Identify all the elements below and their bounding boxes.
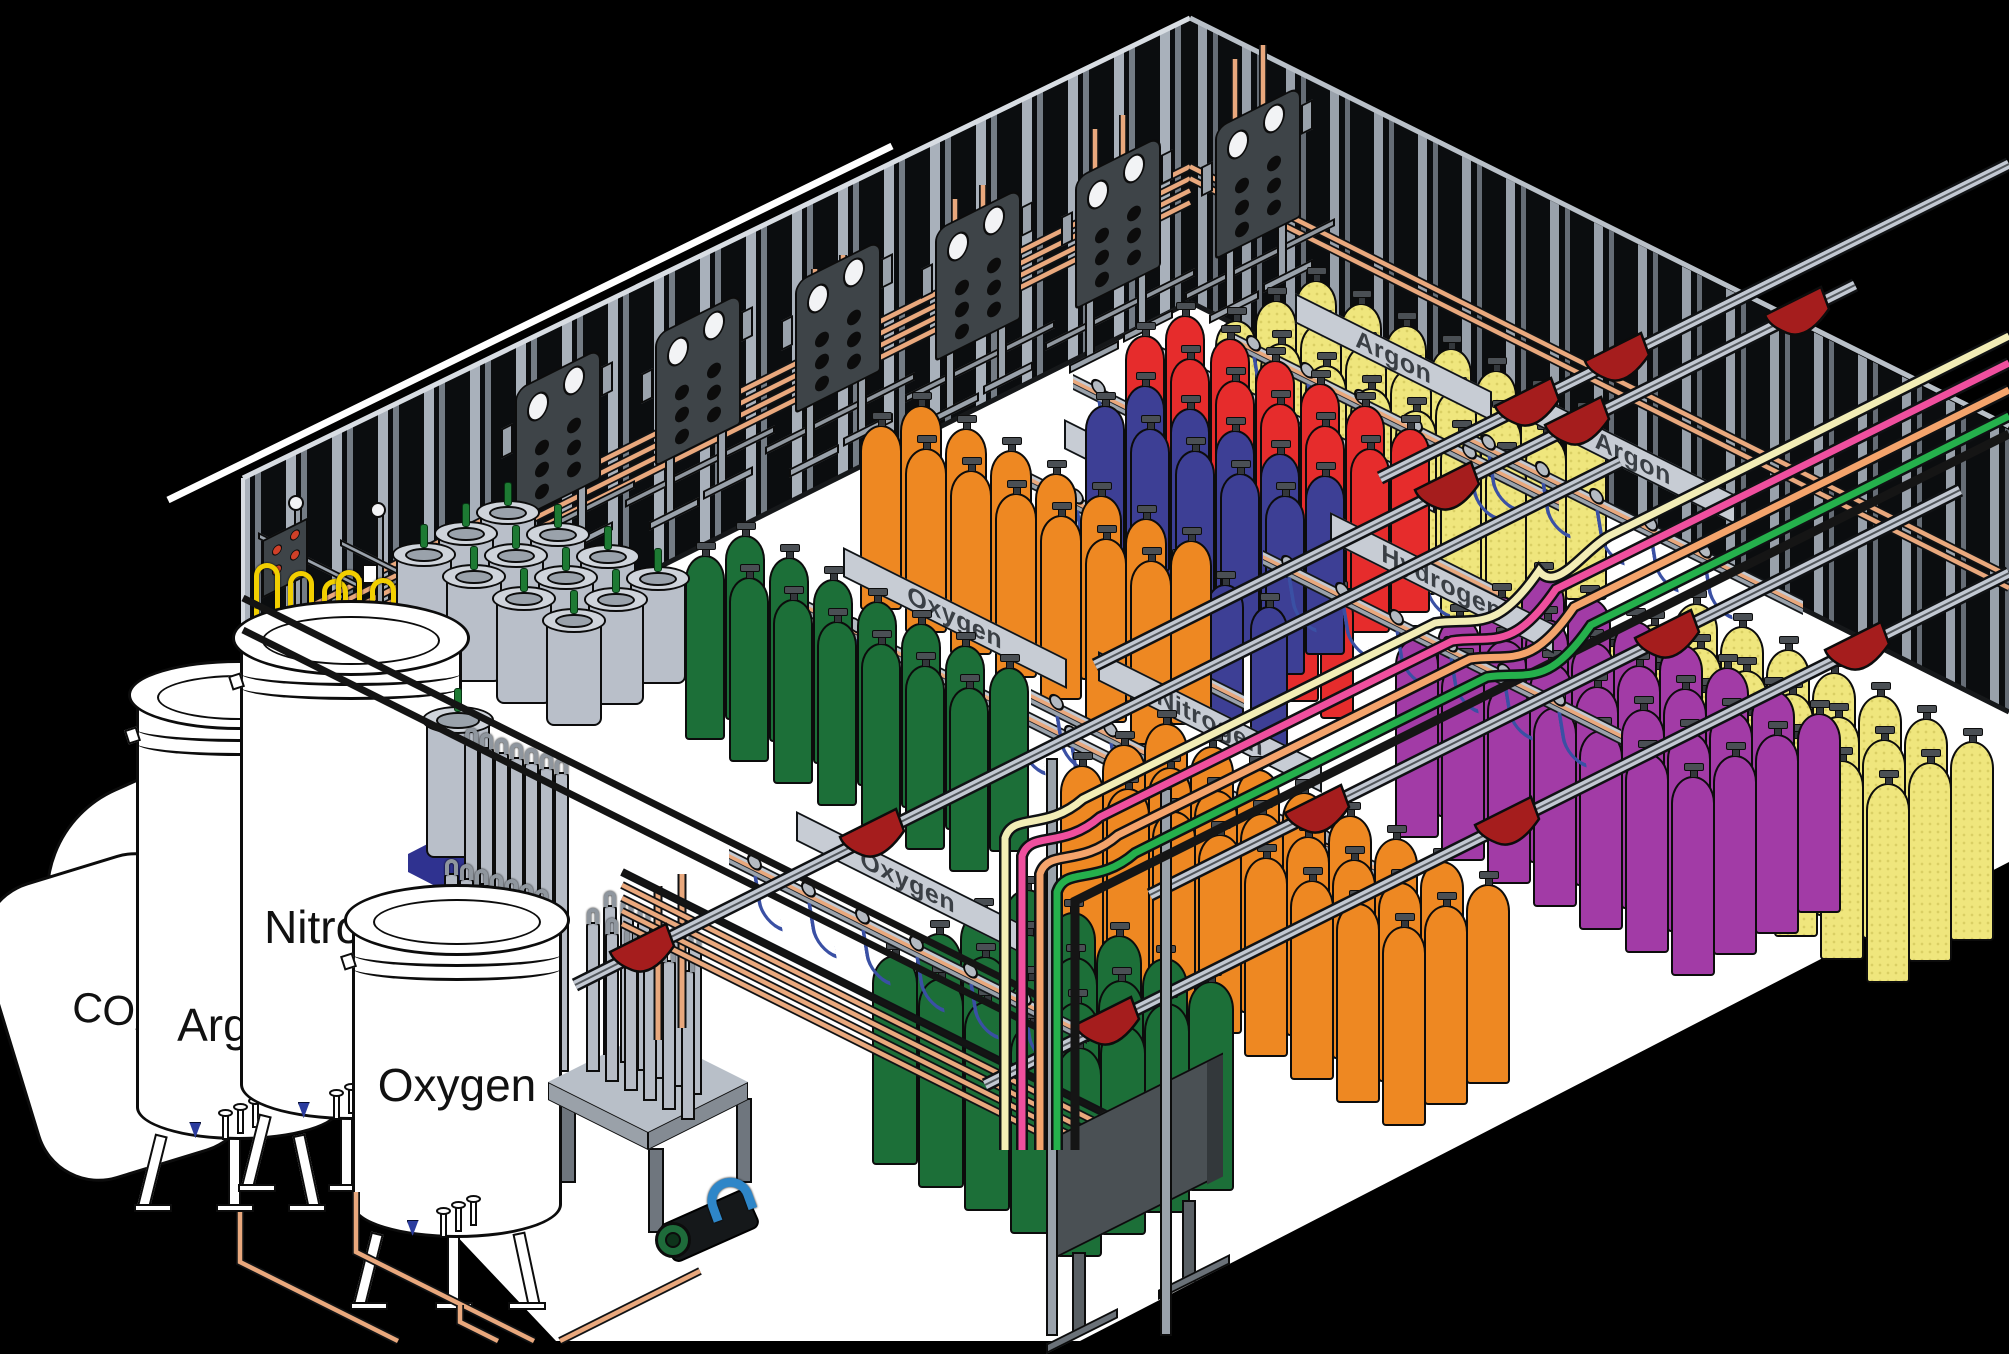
cylinder-valve	[976, 943, 996, 951]
cylinder-valve	[1921, 749, 1941, 757]
cylinder-valve	[1307, 267, 1327, 275]
pressure-gauge	[1227, 125, 1249, 164]
dewar-rim-inner	[489, 506, 527, 521]
cylinder-valve	[1630, 652, 1650, 660]
valve-port	[955, 277, 969, 298]
cylinder-valve	[1829, 703, 1849, 711]
panel-leg	[1182, 1200, 1196, 1282]
valve-port	[1095, 269, 1109, 290]
pressure-gauge	[667, 332, 689, 371]
cylinder-valve	[1442, 335, 1462, 343]
tube-hook	[638, 907, 650, 923]
gas-cylinder	[905, 665, 945, 850]
valve-port	[987, 299, 1001, 320]
cylinder-valve	[1002, 437, 1022, 445]
cylinder-valve	[1810, 700, 1830, 708]
dewar-valve-green	[520, 568, 528, 592]
pressure-gauge	[703, 306, 725, 345]
cylinder-valve	[1492, 583, 1512, 591]
gas-cylinder	[949, 687, 989, 872]
dewar-rim-inner	[639, 572, 677, 587]
indicator-light	[290, 547, 300, 562]
tube-rack-tube	[605, 932, 619, 1082]
vaporizer-leg	[648, 1148, 664, 1233]
cylinder-valve	[1397, 312, 1417, 320]
oxygen-tank-foot	[350, 1302, 388, 1310]
dewar-body	[546, 618, 602, 726]
cylinder-valve	[1020, 921, 1040, 929]
gas-cylinder	[861, 643, 901, 828]
cylinder-valve	[1249, 756, 1269, 764]
panel-post	[781, 315, 793, 351]
cylinder-valve	[1211, 821, 1231, 829]
panel-post	[1021, 201, 1033, 237]
cylinder-valve	[1452, 420, 1472, 428]
tube-rack-tube	[624, 941, 638, 1091]
cylinder-valve	[1221, 325, 1241, 333]
dewar-rim-inner	[436, 712, 480, 729]
panel-post	[501, 423, 513, 459]
dewar-valve-green	[512, 525, 520, 549]
cylinder-valve	[912, 610, 932, 618]
gas-cylinder	[1466, 884, 1510, 1084]
cylinder-valve	[1112, 967, 1132, 975]
cylinder-valve	[1534, 562, 1554, 570]
cylinder-valve	[1257, 844, 1277, 852]
gas-cylinder	[1625, 753, 1669, 953]
tube-hook	[663, 946, 675, 962]
cylinder-valve	[960, 674, 980, 682]
panel-leg	[1072, 1252, 1086, 1334]
dewar-rim-inner	[497, 549, 535, 564]
cylinder-valve	[1584, 629, 1604, 637]
valve-port	[707, 360, 721, 381]
gas-cylinder	[1755, 734, 1799, 934]
cylinder-valve	[1437, 892, 1457, 900]
gas-cylinder	[1336, 903, 1380, 1103]
pressure-gauge	[1123, 149, 1145, 188]
oxygen-tank-fitting	[455, 1206, 462, 1232]
oxygen-tank-leg	[353, 1232, 384, 1307]
valve-port	[1267, 197, 1281, 218]
cylinder-valve	[1407, 397, 1427, 405]
cylinder-valve	[1137, 505, 1157, 513]
cylinder-valve	[1391, 869, 1411, 877]
dewar-valve-green	[654, 548, 662, 572]
cylinder-valve	[916, 652, 936, 660]
gas-cylinder	[1244, 857, 1288, 1057]
cylinder-valve	[1114, 1012, 1134, 1020]
cylinder-valve	[1176, 302, 1196, 310]
cylinder-valve	[1875, 726, 1895, 734]
cylinder-valve	[1645, 611, 1665, 619]
gas-cylinder	[872, 955, 918, 1165]
valve-port	[955, 321, 969, 342]
dewar-valve-green	[562, 547, 570, 571]
tube-hook	[540, 753, 553, 769]
tube-hook	[606, 918, 618, 934]
nitrogen-tank-rim-inner	[262, 616, 440, 665]
cylinder-valve	[1764, 677, 1784, 685]
valve-port	[675, 404, 689, 425]
cylinder-valve	[1317, 352, 1337, 360]
gas-cylinder	[685, 555, 725, 740]
valve-port	[707, 382, 721, 403]
pressure-gauge	[947, 227, 969, 266]
tube-hook	[672, 923, 684, 939]
cylinder-valve	[1142, 547, 1162, 555]
cylinder-valve	[1066, 944, 1086, 952]
dewar-rim-inner	[547, 571, 585, 586]
cylinder-valve	[1492, 400, 1512, 408]
cylinder-valve	[917, 435, 937, 443]
pump-motor-hub	[665, 1232, 681, 1248]
cylinder-valve	[1226, 417, 1246, 425]
valve-port	[535, 481, 549, 502]
dewar-rim-inner	[597, 593, 635, 608]
cylinder-valve	[1345, 846, 1365, 854]
valve-port	[1267, 175, 1281, 196]
cylinder-valve	[1260, 593, 1280, 601]
dewar-valve-green	[420, 524, 428, 548]
cylinder-valve	[780, 544, 800, 552]
tube-hook	[604, 891, 616, 907]
dewar-rim-inner	[405, 548, 443, 563]
argon-tank-fitting	[222, 1114, 229, 1140]
cylinder-valve	[1532, 380, 1552, 388]
cylinder-valve	[1479, 871, 1499, 879]
gas-cylinder	[729, 577, 769, 762]
cylinder-valve	[1226, 367, 1246, 375]
valve-port	[1127, 203, 1141, 224]
cylinder-valve	[824, 566, 844, 574]
cylinder-valve	[912, 392, 932, 400]
valve-port	[1235, 197, 1249, 218]
cylinder-valve	[1092, 482, 1112, 490]
tube-hook	[555, 758, 568, 774]
tube-rack-tube	[662, 960, 676, 1110]
cylinder-valve	[1266, 347, 1286, 355]
cylinder-valve	[1387, 825, 1407, 833]
cylinder-valve	[1267, 287, 1287, 295]
valve-port	[987, 277, 1001, 298]
pressure-gauge	[370, 502, 386, 518]
valve-port	[535, 437, 549, 458]
dewar-valve-green	[470, 546, 478, 570]
tube-hook	[625, 927, 637, 943]
cylinder-valve	[828, 608, 848, 616]
nitrogen-tank-foot	[238, 1184, 276, 1192]
argon-tank-fitting-top	[218, 1109, 233, 1117]
cylinder-valve	[1299, 823, 1319, 831]
cylinder-valve	[740, 564, 760, 572]
argon-tank-foot	[288, 1204, 326, 1212]
cylinder-valve	[1588, 673, 1608, 681]
tube-hook	[621, 899, 633, 915]
argon-tank-fitting	[237, 1108, 244, 1134]
tube-hook	[689, 931, 701, 947]
tube-hook	[480, 733, 493, 749]
cylinder-valve	[1231, 460, 1251, 468]
dewar-rim-inner	[447, 527, 485, 542]
dewar-valve-green	[554, 504, 562, 528]
cylinder-valve	[1202, 968, 1222, 976]
cylinder-valve	[930, 920, 950, 928]
cylinder-valve	[1181, 395, 1201, 403]
cylinder-valve	[1676, 675, 1696, 683]
valve-port	[1235, 175, 1249, 196]
panel-post	[1161, 149, 1173, 185]
valve-port	[955, 299, 969, 320]
cylinder-valve	[1276, 482, 1296, 490]
cylinder-valve	[1018, 876, 1038, 884]
cylinder-valve	[956, 632, 976, 640]
tube-hook	[655, 915, 667, 931]
cylinder-valve	[1203, 733, 1223, 741]
indicator-light	[290, 527, 300, 542]
valve-port	[847, 351, 861, 372]
gas-cylinder	[1713, 755, 1757, 955]
cylinder-valve	[1871, 682, 1891, 690]
cylinder-valve	[1052, 502, 1072, 510]
dewar-valve-green	[454, 688, 462, 712]
oxygen-tank-label: Oxygen	[347, 1058, 567, 1112]
tube-rack-tube	[586, 922, 600, 1072]
cylinder-valve	[1577, 402, 1597, 410]
valve-port	[1127, 247, 1141, 268]
nitrogen-tank-band	[240, 674, 462, 700]
tube-rack-tube	[643, 951, 657, 1101]
cylinder-valve	[1726, 742, 1746, 750]
cylinder-valve	[1161, 754, 1181, 762]
cylinder-valve	[1361, 435, 1381, 443]
cylinder-valve	[1680, 719, 1700, 727]
copper-pipe-outline	[460, 1305, 498, 1341]
dewar-rim-inner	[539, 528, 577, 543]
gas-cylinder	[1866, 783, 1910, 983]
dewar-rim-inner	[455, 570, 493, 585]
valve-port	[1235, 219, 1249, 240]
cylinder-valve	[1186, 437, 1206, 445]
cylinder-valve	[1119, 775, 1139, 783]
cylinder-valve	[1303, 867, 1323, 875]
cylinder-valve	[1684, 763, 1704, 771]
oxygen-tank-foot	[435, 1302, 473, 1310]
tube-rack-tube	[681, 970, 695, 1120]
cylinder-valve	[872, 630, 892, 638]
panel-post	[921, 263, 933, 299]
valve-port	[675, 382, 689, 403]
cylinder-valve	[1000, 654, 1020, 662]
pressure-gauge	[983, 201, 1005, 240]
cylinder-valve	[1096, 392, 1116, 400]
dewar-cylinder	[496, 586, 552, 704]
vaporizer-leg	[736, 1098, 752, 1183]
cylinder-valve	[1141, 415, 1161, 423]
dewar-valve-green	[504, 482, 512, 506]
cylinder-valve	[1580, 585, 1600, 593]
panel-post	[741, 306, 753, 342]
valve-port	[675, 426, 689, 447]
gas-cylinder	[1085, 538, 1127, 723]
argon-tank-foot	[134, 1204, 172, 1212]
cylinder-valve	[1110, 922, 1130, 930]
valve-port	[815, 373, 829, 394]
cylinder-valve	[1672, 631, 1692, 639]
cylinder-valve	[1007, 480, 1027, 488]
cylinder-valve	[1295, 779, 1315, 787]
cylinder-valve	[736, 522, 756, 530]
cylinder-valve	[1538, 606, 1558, 614]
valve-port	[567, 415, 581, 436]
argon-tank-foot	[216, 1204, 254, 1212]
argon-tank-leg	[292, 1133, 320, 1208]
gas-cylinder	[1382, 926, 1426, 1126]
gas-cylinder	[817, 621, 857, 806]
nitrogen-tank-fitting	[333, 1094, 340, 1120]
valve-port	[815, 329, 829, 350]
valve-port	[1267, 153, 1281, 174]
tube-hook	[587, 908, 599, 924]
cylinder-valve	[1227, 307, 1247, 315]
valve-port	[567, 459, 581, 480]
cylinder-valve	[1253, 800, 1273, 808]
pressure-gauge	[288, 495, 304, 511]
cylinder-valve	[1352, 290, 1372, 298]
valve-port	[1127, 225, 1141, 246]
panel-post	[1201, 161, 1213, 197]
valve-port	[847, 329, 861, 350]
panel-post	[1301, 99, 1313, 135]
gas-cylinder	[1908, 762, 1952, 962]
valve-port	[987, 255, 1001, 276]
cylinder-valve	[1097, 525, 1117, 533]
pressure-gauge	[563, 361, 585, 400]
support-post	[1160, 788, 1172, 1336]
tube-hook	[460, 864, 473, 880]
cylinder-valve	[1115, 731, 1135, 739]
cylinder-valve	[696, 542, 716, 550]
gas-cylinder	[1424, 905, 1468, 1105]
cylinder-valve	[1182, 527, 1202, 535]
valve-port	[847, 307, 861, 328]
panel-post	[1061, 211, 1073, 247]
cylinder-valve	[1136, 372, 1156, 380]
pressure-gauge	[1263, 99, 1285, 138]
cylinder-valve	[1718, 654, 1738, 662]
cylinder-valve	[1341, 802, 1361, 810]
valve-port	[815, 351, 829, 372]
cylinder-valve	[1634, 696, 1654, 704]
gas-cylinder	[773, 599, 813, 784]
cylinder-valve	[1917, 705, 1937, 713]
cylinder-valve	[1638, 740, 1658, 748]
cylinder-valve	[1691, 634, 1711, 642]
tube-hook	[495, 738, 508, 754]
cylinder-valve	[1768, 721, 1788, 729]
cylinder-valve	[1207, 777, 1227, 785]
cylinder-valve	[962, 457, 982, 465]
tube-hook	[510, 743, 523, 759]
cylinder-valve	[1311, 370, 1331, 378]
valve-port	[1095, 247, 1109, 268]
cylinder-valve	[1779, 636, 1799, 644]
cylinder-valve	[1879, 770, 1899, 778]
tube-hook	[525, 748, 538, 764]
dewar-cylinder	[546, 608, 602, 726]
cylinder-valve	[1687, 590, 1707, 598]
oxygen-tank-foot	[508, 1302, 546, 1310]
cylinder-valve	[1216, 571, 1236, 579]
cylinder-valve	[1963, 728, 1983, 736]
copper-pipe	[460, 1305, 498, 1341]
oxygen-tank-band	[352, 955, 562, 981]
pressure-gauge	[807, 279, 829, 318]
cylinder-valve	[1271, 390, 1291, 398]
tube-hook	[644, 937, 656, 953]
dewar-body	[496, 596, 552, 704]
cylinder-valve	[1626, 608, 1646, 616]
cylinder-valve	[1272, 330, 1292, 338]
cylinder-valve	[1316, 412, 1336, 420]
valve-port	[707, 404, 721, 425]
pressure-gauge	[527, 387, 549, 426]
gas-cylinder	[1950, 741, 1994, 941]
cylinder-valve	[1181, 345, 1201, 353]
valve-port	[535, 459, 549, 480]
yellow-hose	[254, 563, 280, 609]
cylinder-valve	[1487, 357, 1507, 365]
dewar-rim-inner	[555, 614, 593, 629]
pressure-gauge	[1087, 175, 1109, 214]
pressure-gauge	[843, 253, 865, 292]
cylinder-valve	[1362, 375, 1382, 383]
cylinder-valve	[1047, 460, 1067, 468]
dewar-valve-green	[570, 590, 578, 614]
cylinder-valve	[1356, 392, 1376, 400]
cylinder-valve	[1068, 989, 1088, 997]
cylinder-valve	[1157, 710, 1177, 718]
cylinder-valve	[1349, 890, 1369, 898]
argon-tank-fitting-top	[233, 1103, 248, 1111]
indicator-light	[272, 543, 282, 558]
cylinder-valve	[957, 415, 977, 423]
dewar-rim-inner	[589, 550, 627, 565]
gas-cylinder	[989, 667, 1029, 852]
cylinder-valve	[1316, 462, 1336, 470]
panel-post	[641, 368, 653, 404]
cylinder-valve	[1022, 966, 1042, 974]
nitrogen-tank-leg	[340, 1114, 353, 1188]
panel-post	[881, 253, 893, 289]
gas-cylinder	[1290, 880, 1334, 1080]
dewar-valve-green	[612, 569, 620, 593]
cylinder-valve	[1825, 659, 1845, 667]
cylinder-valve	[1737, 657, 1757, 665]
cylinder-valve	[1073, 752, 1093, 760]
dewar-valve-green	[462, 503, 470, 527]
cylinder-valve	[1271, 440, 1291, 448]
gas-cylinder	[1671, 776, 1715, 976]
panel-side-strip	[1207, 1054, 1223, 1184]
dewar-valve-green	[604, 526, 612, 550]
cylinder-valve	[1395, 913, 1415, 921]
cylinder-valve	[784, 586, 804, 594]
cylinder-valve	[1783, 680, 1803, 688]
cylinder-valve	[1401, 415, 1421, 423]
dewar-rim-inner	[505, 592, 543, 607]
cylinder-valve	[868, 588, 888, 596]
